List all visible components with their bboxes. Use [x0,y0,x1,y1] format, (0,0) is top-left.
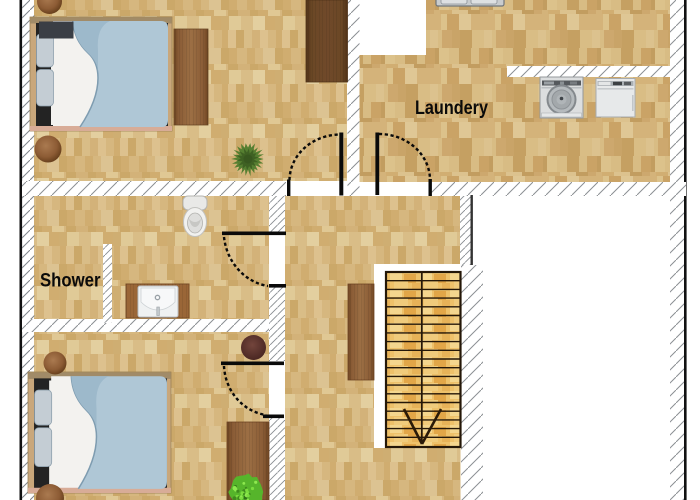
svg-text:Laundery: Laundery [415,98,488,119]
svg-text:Shower: Shower [40,270,101,292]
